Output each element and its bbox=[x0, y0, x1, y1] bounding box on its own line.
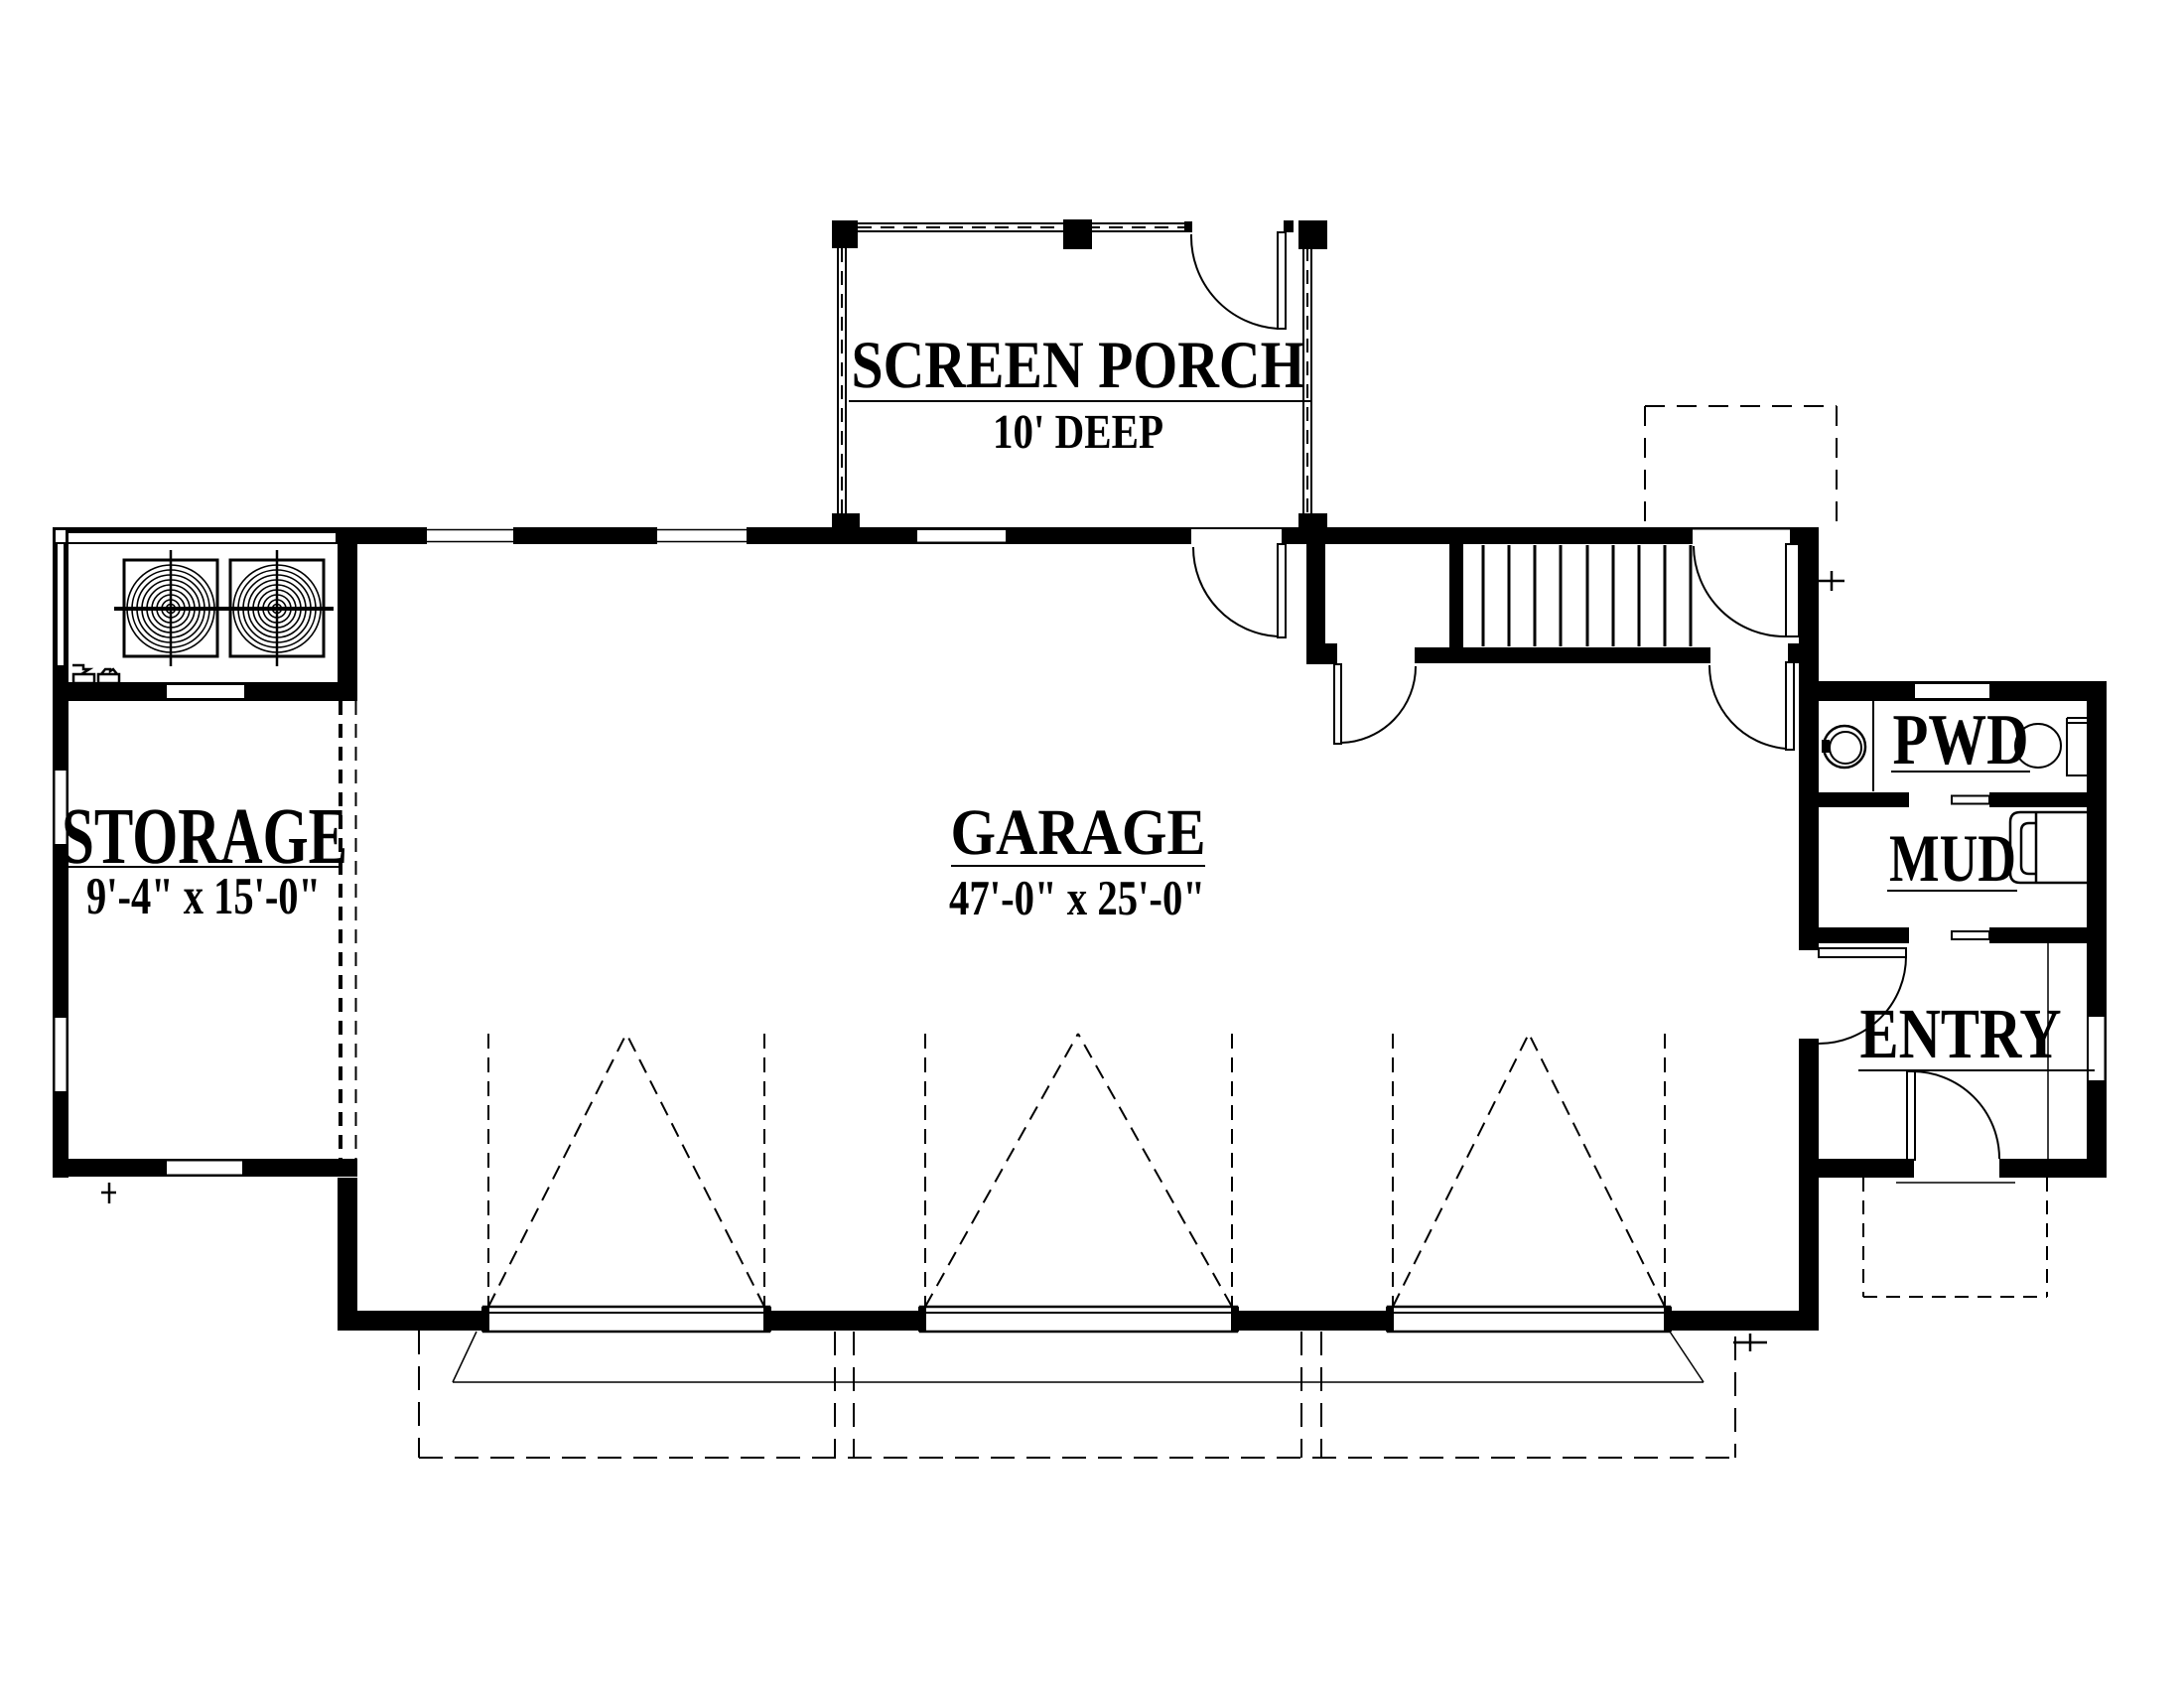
svg-text:ENTRY: ENTRY bbox=[1860, 994, 2062, 1073]
svg-text:47'-0" x 25'-0": 47'-0" x 25'-0" bbox=[949, 870, 1205, 925]
svg-text:PWD: PWD bbox=[1893, 699, 2029, 779]
svg-text:GARAGE: GARAGE bbox=[951, 796, 1206, 869]
svg-text:9'-4" x 15'-0": 9'-4" x 15'-0" bbox=[86, 868, 321, 925]
svg-text:10' DEEP: 10' DEEP bbox=[993, 404, 1163, 459]
svg-text:MUD: MUD bbox=[1889, 820, 2016, 896]
svg-text:SCREEN PORCH: SCREEN PORCH bbox=[852, 327, 1305, 402]
